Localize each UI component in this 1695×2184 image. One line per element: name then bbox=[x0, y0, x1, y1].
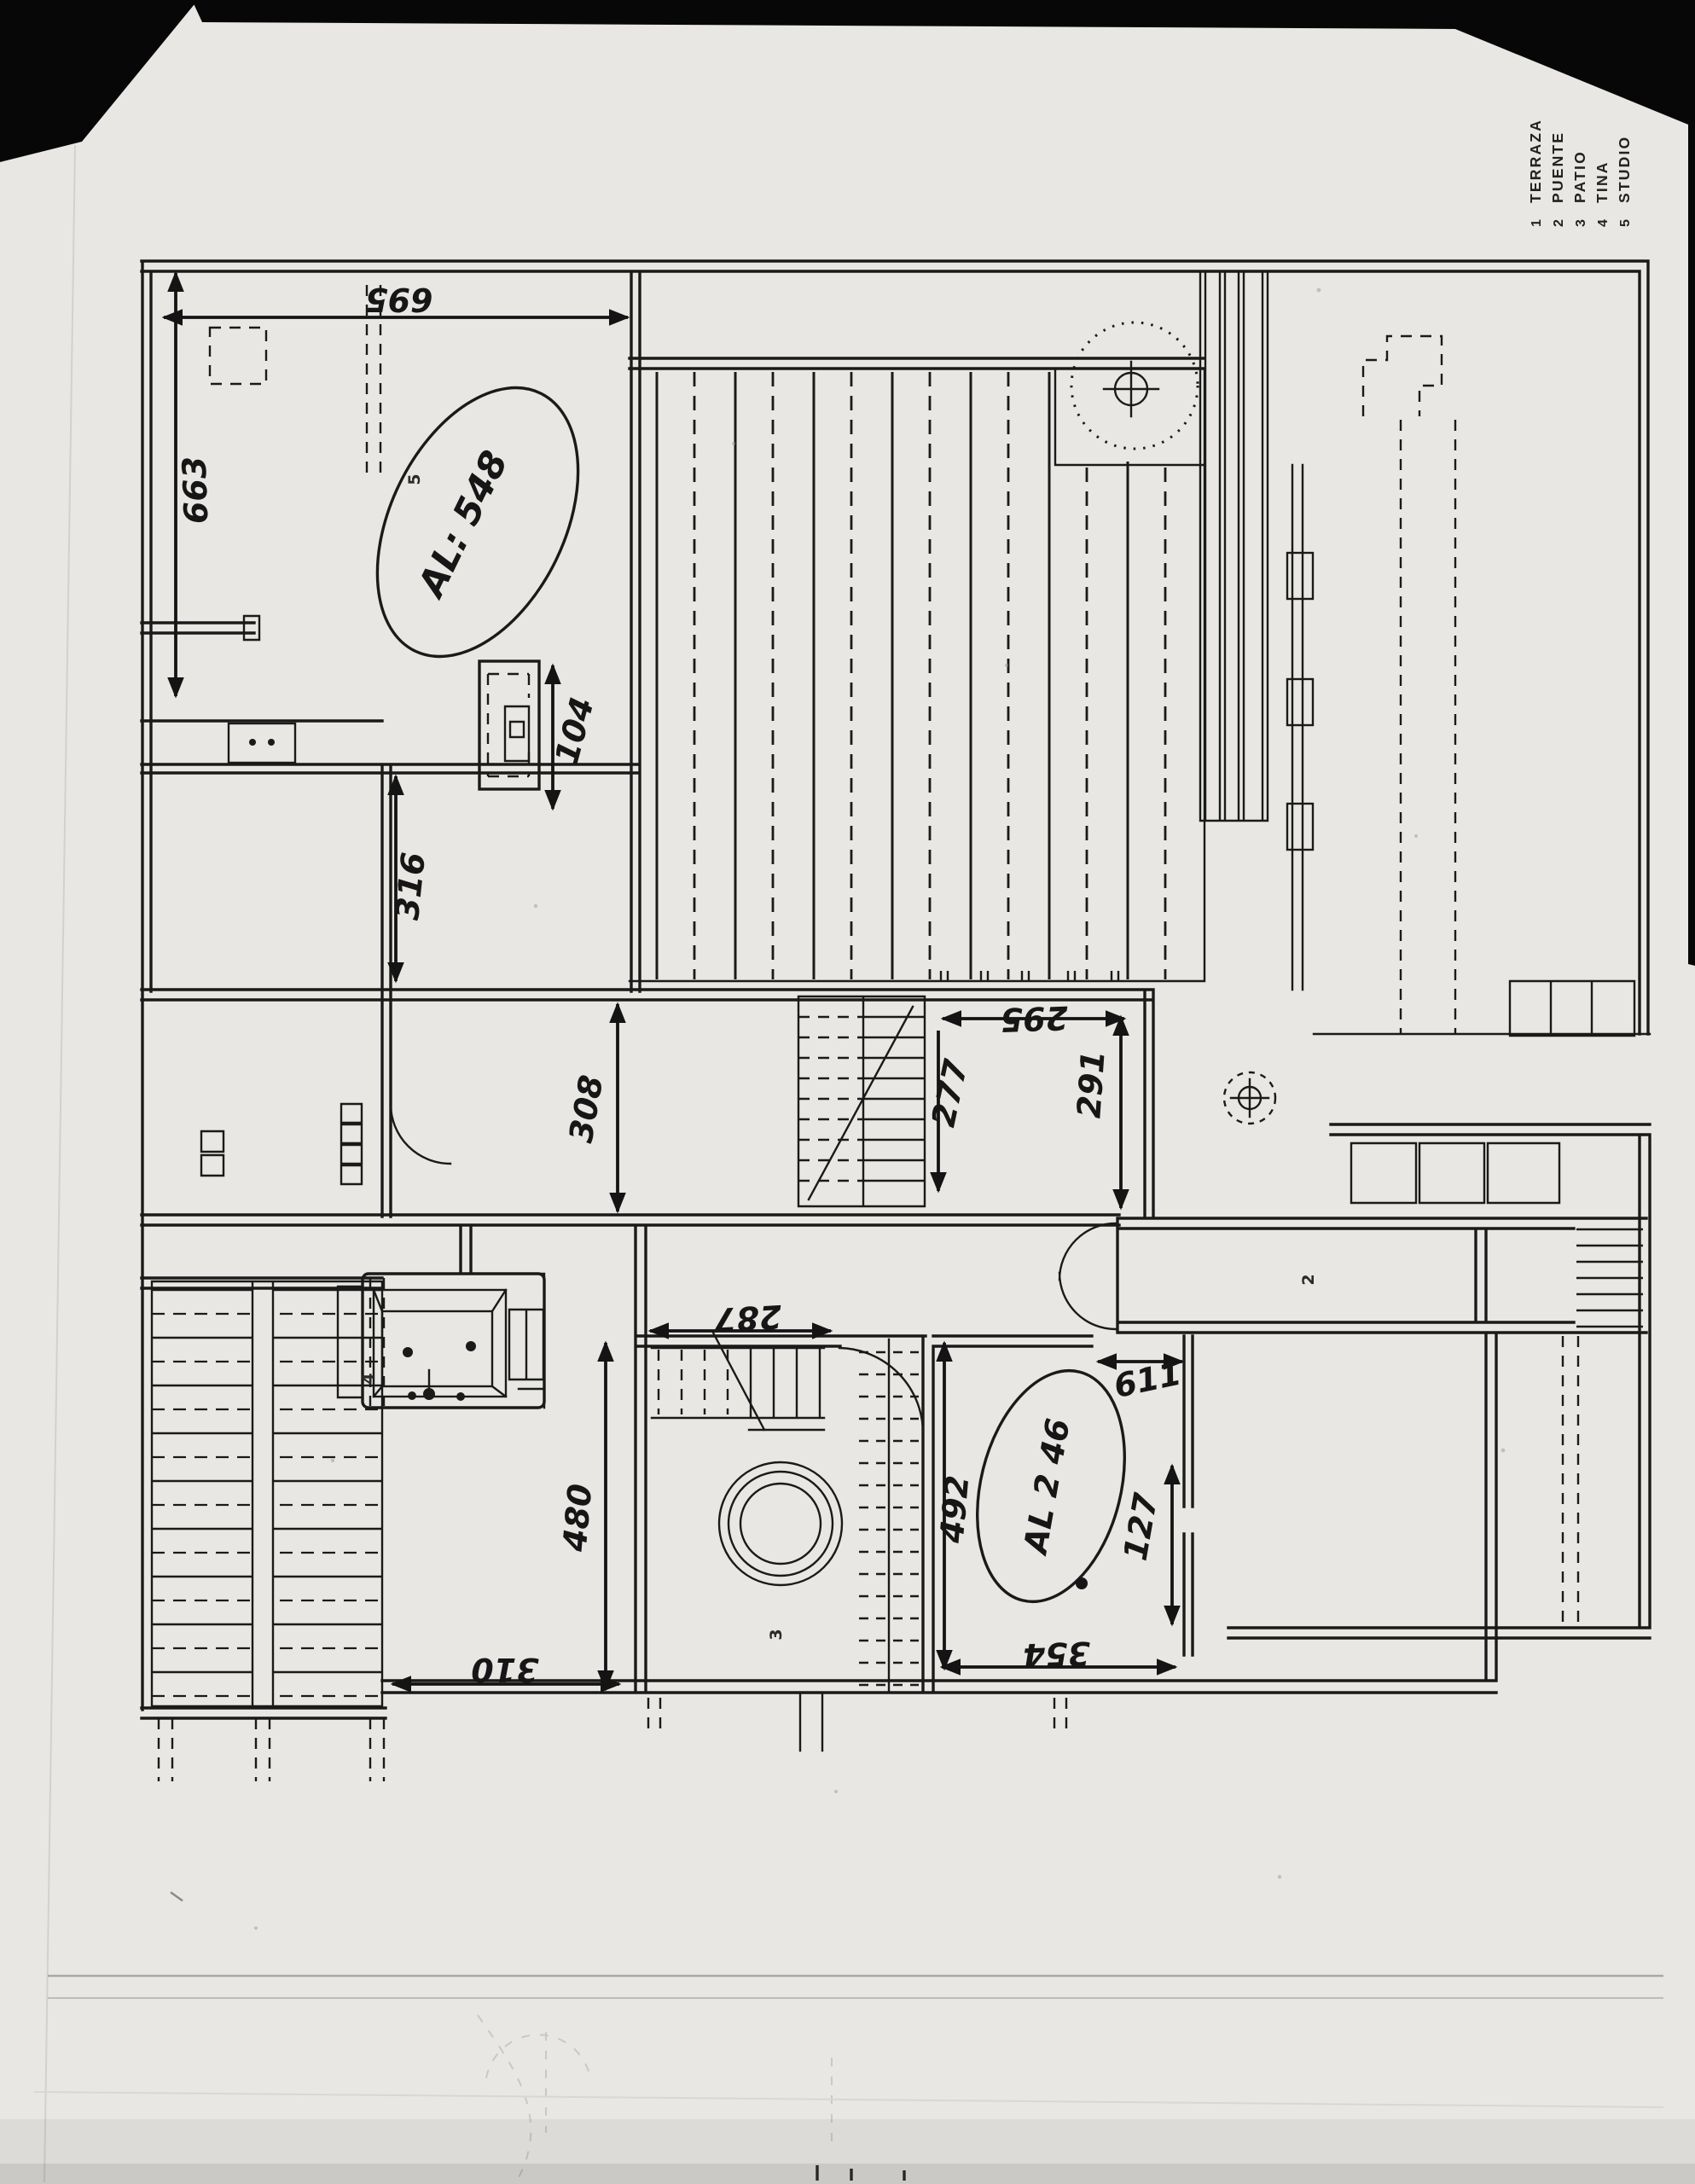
dim-label-287: 287 bbox=[712, 1298, 782, 1339]
legend-label-studio: STUDIO bbox=[1616, 136, 1633, 203]
legend-num-5: 5 bbox=[1618, 219, 1633, 227]
legend-num-2: 2 bbox=[1552, 219, 1566, 227]
legend-label-puente: PUENTE bbox=[1549, 131, 1566, 203]
note-bullet-dot bbox=[1076, 1577, 1088, 1589]
scanned-page: 695 663 104 316 308 295 277 291 287 480 … bbox=[0, 0, 1695, 2184]
dim-label-291: 291 bbox=[1070, 1049, 1112, 1119]
dim-label-354: 354 bbox=[1022, 1635, 1091, 1675]
terrace-hatch-strip bbox=[1576, 1222, 1643, 1329]
dim-label-480: 480 bbox=[556, 1482, 600, 1554]
room-number-studio: 5 bbox=[405, 473, 424, 485]
dim-label-316: 316 bbox=[388, 851, 432, 921]
terraza-slat-roof bbox=[641, 372, 1201, 979]
dim-label-295: 295 bbox=[1000, 999, 1069, 1039]
legend-label-patio: PATIO bbox=[1571, 150, 1588, 203]
deck-gap bbox=[253, 1281, 273, 1706]
room-number-puente: 2 bbox=[1299, 1274, 1318, 1285]
legend-label-terraza: TERRAZA bbox=[1527, 119, 1544, 203]
legend-num-4: 4 bbox=[1596, 219, 1611, 227]
dim-label-492: 492 bbox=[933, 1473, 977, 1545]
legend-num-1: 1 bbox=[1530, 219, 1544, 227]
floor-plan-scan: 695 663 104 316 308 295 277 291 287 480 … bbox=[0, 0, 1695, 2184]
room-number-tina: 4 bbox=[359, 1373, 378, 1384]
dim-label-663: 663 bbox=[176, 456, 216, 525]
sink-tap-dot bbox=[249, 739, 256, 746]
dim-label-310: 310 bbox=[471, 1651, 538, 1688]
room-number-patio: 3 bbox=[767, 1629, 786, 1640]
sink-tap-dot bbox=[268, 739, 275, 746]
legend-label-tina: TINA bbox=[1593, 160, 1611, 203]
scan-shadow-bottom-edge bbox=[0, 2164, 1695, 2184]
legend-num-3: 3 bbox=[1574, 219, 1588, 227]
dim-label-695: 695 bbox=[365, 281, 432, 318]
